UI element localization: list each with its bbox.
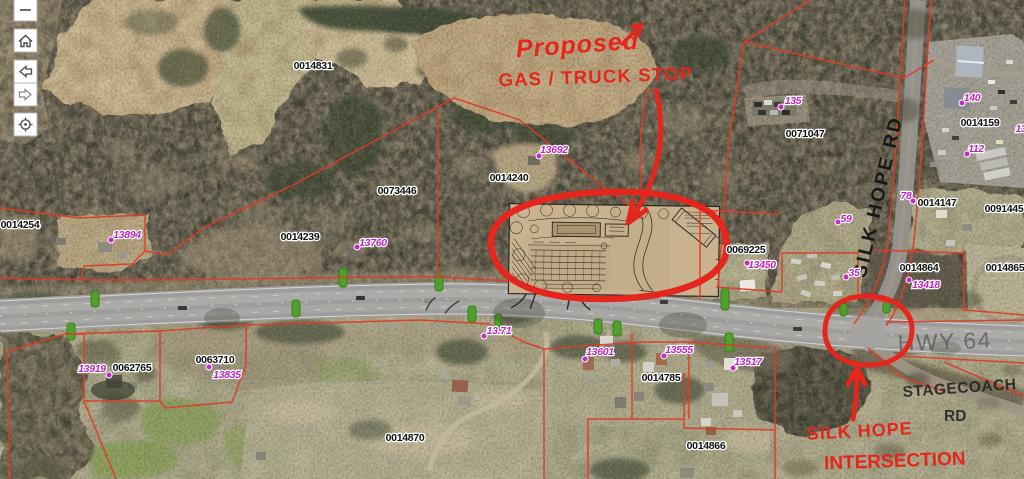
- svg-text:13450: 13450: [748, 259, 776, 271]
- svg-text:0014865: 0014865: [986, 262, 1024, 274]
- svg-text:135: 135: [785, 95, 802, 107]
- svg-text:0014254: 0014254: [1, 219, 40, 231]
- svg-text:0014866: 0014866: [687, 440, 726, 452]
- svg-text:0014870: 0014870: [386, 432, 425, 444]
- svg-text:0071047: 0071047: [786, 128, 825, 140]
- svg-text:13692: 13692: [540, 144, 568, 156]
- svg-text:13: 13: [1015, 123, 1024, 135]
- svg-text:13835: 13835: [213, 369, 241, 381]
- svg-text:0063710: 0063710: [196, 354, 235, 366]
- svg-text:0014159: 0014159: [961, 117, 1000, 129]
- svg-text:35: 35: [848, 267, 860, 279]
- svg-text:13418: 13418: [912, 279, 940, 291]
- svg-text:0014239: 0014239: [281, 231, 320, 243]
- svg-text:13760: 13760: [359, 237, 387, 249]
- svg-text:0014785: 0014785: [642, 372, 681, 384]
- svg-text:13517: 13517: [734, 356, 763, 368]
- svg-text:0069225: 0069225: [727, 244, 766, 256]
- svg-text:0073446: 0073446: [378, 185, 417, 197]
- svg-text:13555: 13555: [665, 344, 693, 356]
- svg-text:112: 112: [968, 143, 984, 155]
- svg-text:0014864: 0014864: [900, 262, 939, 274]
- svg-text:140: 140: [964, 92, 981, 104]
- svg-text:13919: 13919: [78, 363, 106, 375]
- svg-text:13.71: 13.71: [487, 325, 512, 337]
- svg-text:0014147: 0014147: [918, 197, 957, 209]
- svg-text:59: 59: [840, 213, 852, 225]
- svg-text:0014831: 0014831: [294, 60, 333, 72]
- svg-text:RD: RD: [944, 408, 966, 425]
- svg-text:13894: 13894: [113, 229, 141, 241]
- svg-text:0062765: 0062765: [113, 362, 152, 374]
- svg-text:0014240: 0014240: [490, 172, 529, 184]
- svg-text:0091445: 0091445: [985, 203, 1024, 215]
- svg-text:13601: 13601: [586, 346, 614, 358]
